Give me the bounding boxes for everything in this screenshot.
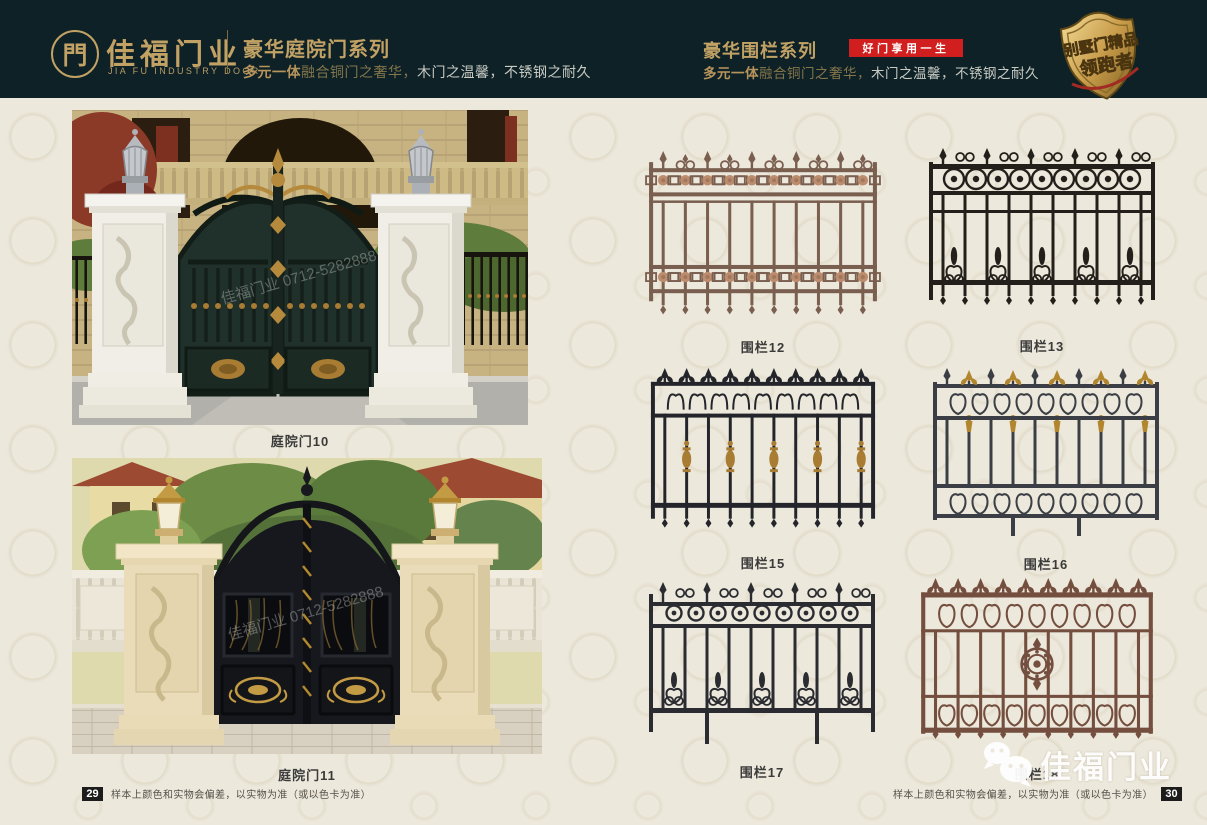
- subtitle-emphasis: 多元一体: [703, 66, 759, 81]
- subtitle-emphasis: 多元一体: [243, 64, 301, 80]
- fence-figure-17: 围栏17: [642, 580, 882, 781]
- courtyard-gate-11-image: 佳福门业 0712-5282888: [72, 458, 542, 754]
- fence-caption: 围栏15: [741, 553, 785, 572]
- header-bar: 門 佳福门业 JIA FU INDUSTRY DOOR 豪华庭院门系列 多元一体…: [0, 0, 1207, 98]
- door-caption-11: 庭院门11: [72, 765, 542, 784]
- gold-shield-emblem: 别墅门精品 领跑者: [1048, 8, 1154, 104]
- fence-image: [914, 578, 1160, 754]
- brand-logo-icon: 門: [51, 30, 99, 78]
- subtitle-mid: 融合铜门之奢华，: [759, 66, 871, 81]
- subtitle-rest: 木门之温馨，不锈钢之耐久: [871, 66, 1039, 81]
- header-divider: [227, 30, 228, 74]
- fence-image: [926, 368, 1166, 540]
- page-number-right: 30: [1161, 787, 1182, 801]
- brand-watermark: 佳福门业: [982, 740, 1172, 788]
- door-photo-11: 佳福门业 0712-5282888: [72, 458, 542, 754]
- series-left-title: 豪华庭院门系列: [243, 33, 390, 62]
- logo-door-glyph: 門: [62, 36, 87, 72]
- series-right-title: 豪华围栏系列: [703, 37, 817, 63]
- series-right-subtitle: 多元一体融合铜门之奢华，木门之温馨，不锈钢之耐久: [703, 62, 1039, 82]
- catalog-page: 門 佳福门业 JIA FU INDUSTRY DOOR 豪华庭院门系列 多元一体…: [0, 0, 1207, 825]
- fence-image: [642, 580, 882, 752]
- fence-caption: 围栏16: [1024, 554, 1068, 573]
- fence-caption: 围栏12: [741, 337, 785, 356]
- subtitle-mid: 融合铜门之奢华，: [301, 64, 417, 80]
- door-caption-10: 庭院门10: [72, 431, 528, 450]
- brand-name-en: JIA FU INDUSTRY DOOR: [108, 66, 261, 76]
- slogan-badge: 好门享用一生: [849, 39, 963, 57]
- fence-figure-12: 围栏12: [642, 148, 884, 356]
- fence-caption: 围栏13: [1020, 336, 1064, 355]
- subtitle-rest: 木门之温馨，不锈钢之耐久: [417, 64, 591, 80]
- page-number-left: 29: [82, 787, 103, 801]
- fence-figure-16: 围栏16: [926, 368, 1166, 573]
- shield-icon: 别墅门精品 领跑者: [1048, 8, 1154, 104]
- fence-caption: 围栏17: [740, 762, 784, 781]
- fence-figure-15: 围栏15: [644, 368, 882, 572]
- footer-left: 29 样本上颜色和实物会偏差，以实物为准（或以色卡为准）: [82, 786, 371, 801]
- wechat-icon: [982, 740, 1036, 788]
- fence-figure-13: 围栏13: [922, 148, 1162, 355]
- fence-image: [644, 368, 882, 539]
- watermark-brand-text: 佳福门业: [1040, 742, 1172, 787]
- disclaimer-note: 样本上颜色和实物会偏差，以实物为准（或以色卡为准）: [893, 786, 1153, 801]
- fence-image: [922, 148, 1162, 320]
- disclaimer-note: 样本上颜色和实物会偏差，以实物为准（或以色卡为准）: [111, 786, 371, 801]
- footer-right: 样本上颜色和实物会偏差，以实物为准（或以色卡为准） 30: [893, 786, 1182, 801]
- door-photo-10: 佳福门业 0712-5282888: [72, 110, 528, 425]
- series-left-subtitle: 多元一体融合铜门之奢华，木门之温馨，不锈钢之耐久: [243, 62, 591, 82]
- courtyard-gate-10-image: 佳福门业 0712-5282888: [72, 110, 528, 425]
- fence-image: [642, 148, 884, 321]
